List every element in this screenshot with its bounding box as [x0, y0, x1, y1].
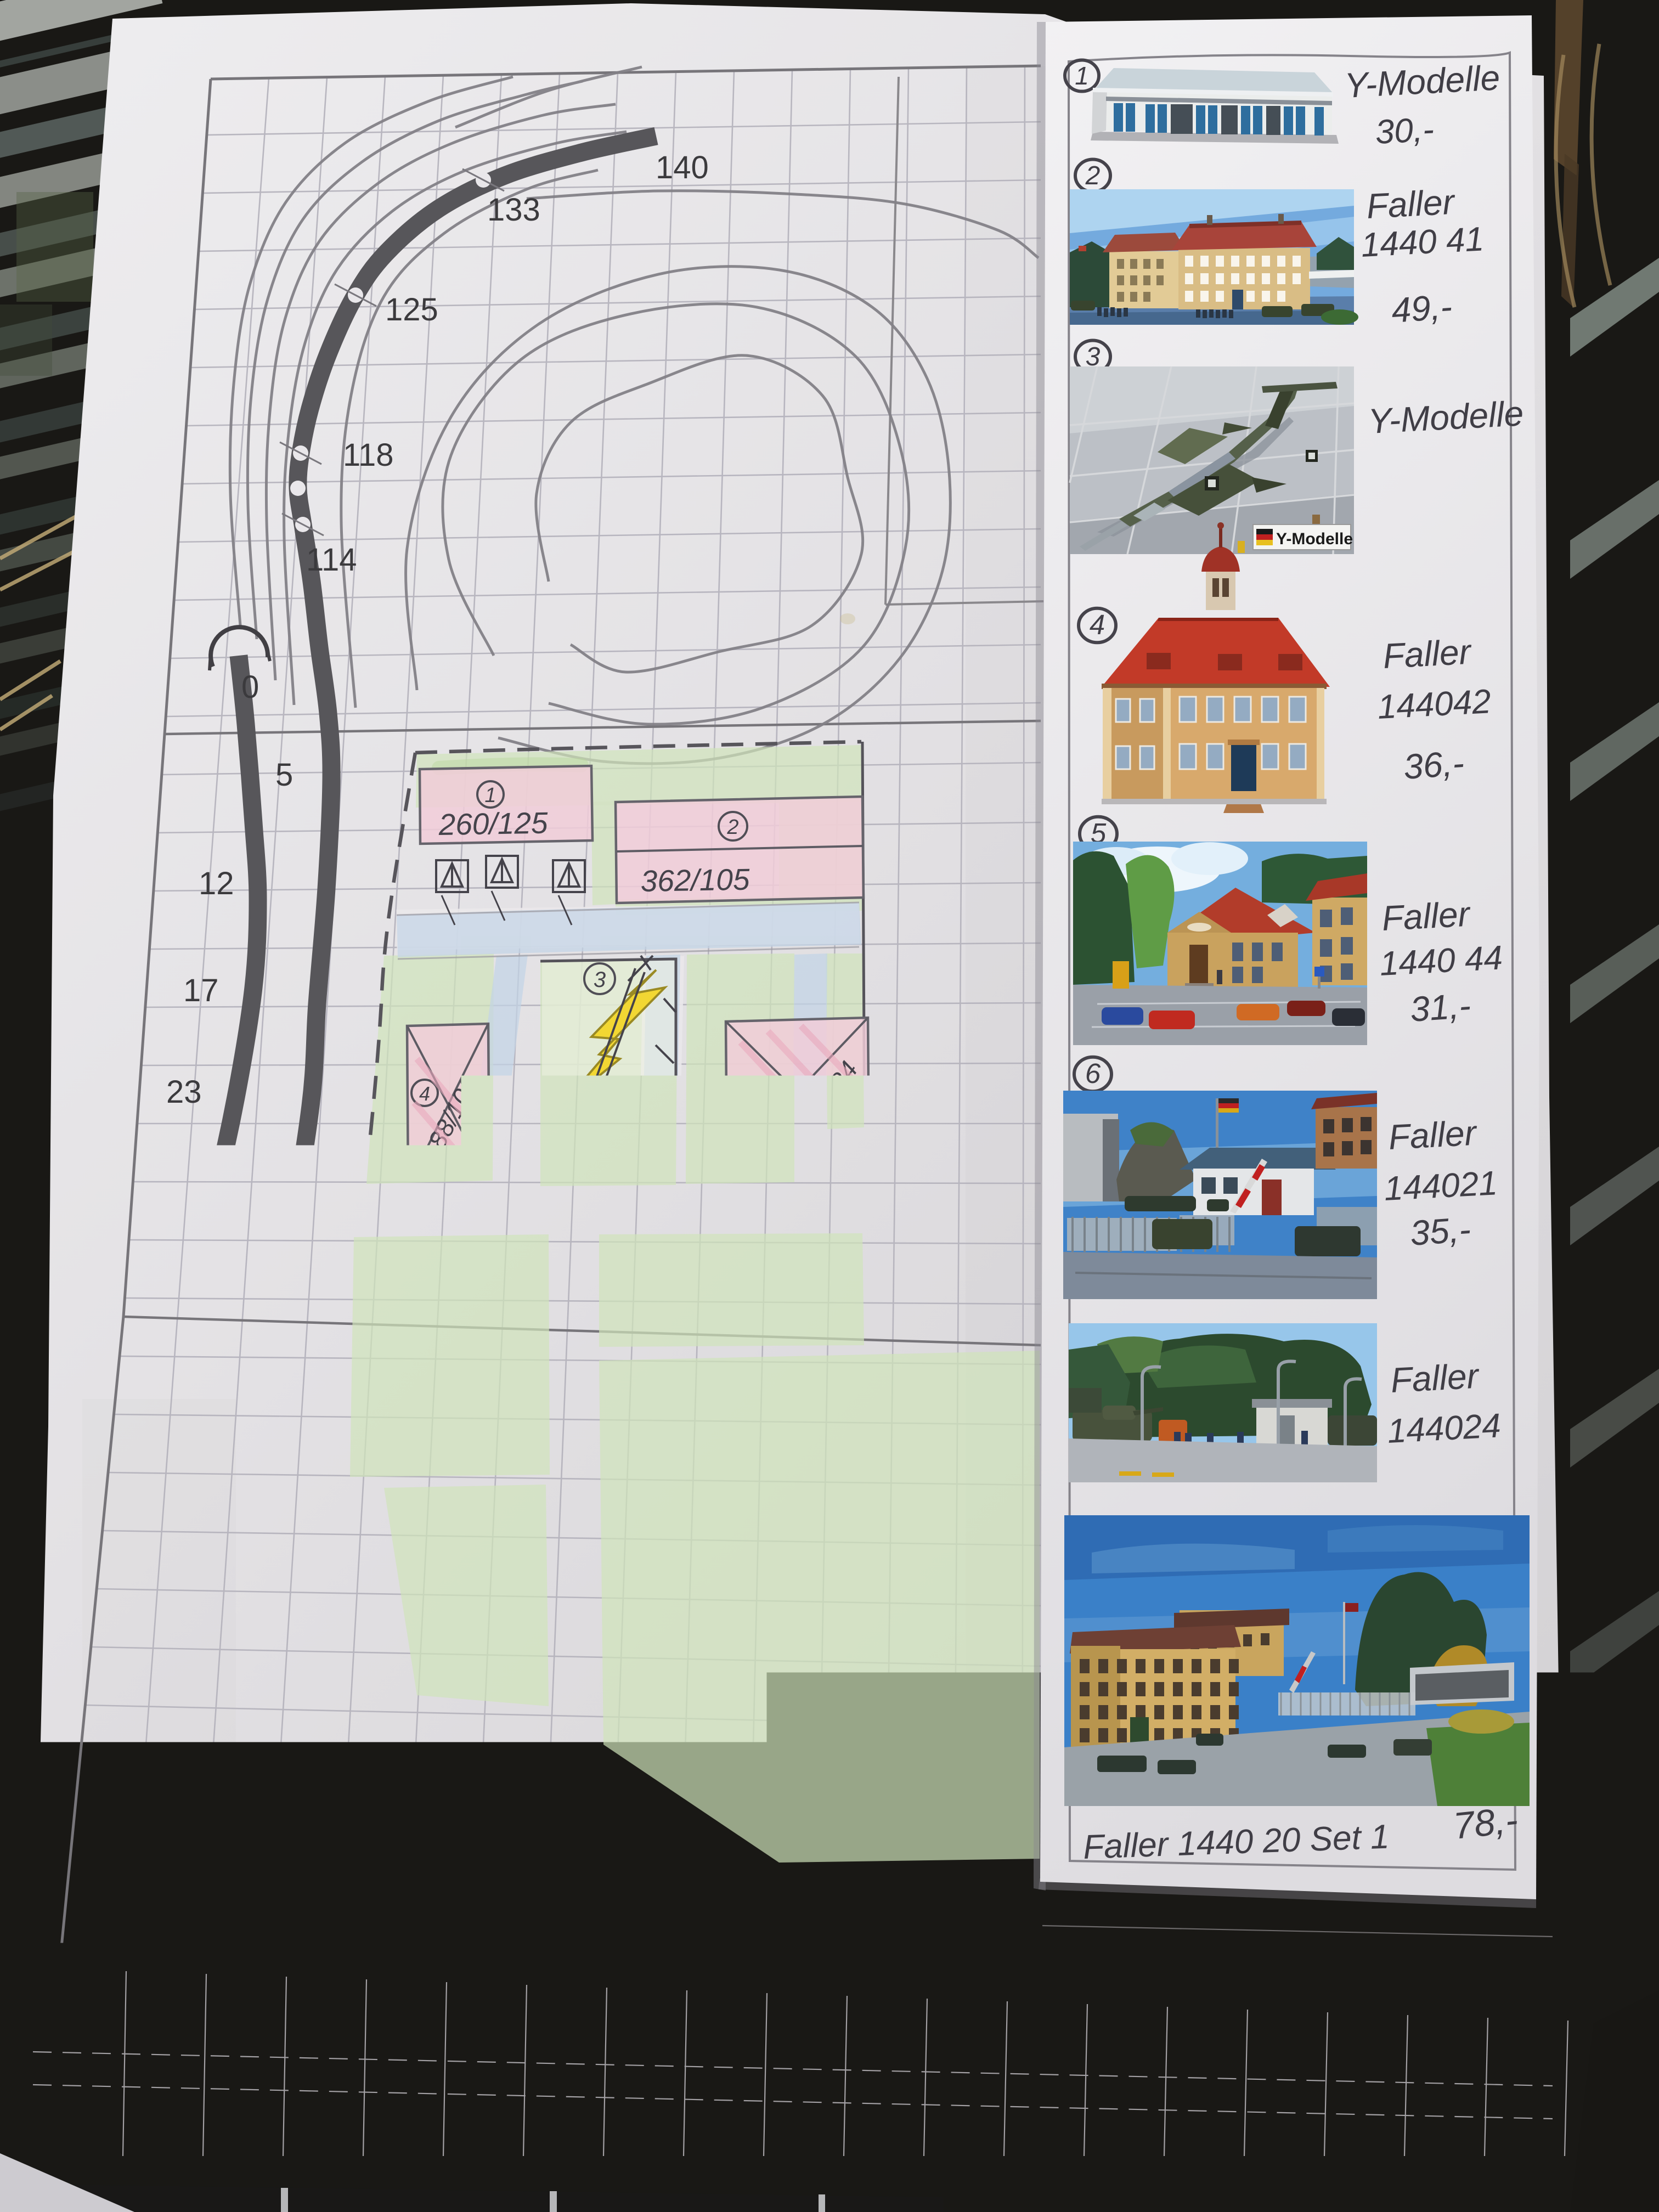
svg-text:1440 44: 1440 44 — [1379, 939, 1503, 983]
svg-text:144024: 144024 — [1386, 1407, 1502, 1451]
svg-text:60 60: 60 60 — [391, 1852, 470, 1888]
svg-text:6: 6 — [1085, 1058, 1101, 1089]
svg-text:Y-Modelle: Y-Modelle — [1276, 530, 1353, 548]
svg-text:5: 5 — [275, 757, 293, 793]
svg-text:2: 2 — [726, 816, 738, 839]
svg-text:36,-: 36,- — [1402, 743, 1465, 787]
svg-text:12: 12 — [199, 866, 234, 901]
svg-text:Faller: Faller — [1365, 182, 1457, 226]
svg-text:6: 6 — [505, 1340, 516, 1363]
svg-text:Faller: Faller — [1382, 632, 1473, 676]
svg-text:5: 5 — [755, 1082, 766, 1105]
svg-text:23: 23 — [166, 1074, 202, 1110]
svg-text:78,-: 78,- — [1452, 1799, 1520, 1847]
svg-text:114: 114 — [306, 542, 357, 578]
svg-text:Y-Modelle: Y-Modelle — [1367, 393, 1525, 441]
svg-text:Faller: Faller — [1381, 894, 1472, 938]
svg-text:69: 69 — [305, 1667, 341, 1702]
svg-text:1: 1 — [484, 784, 496, 807]
svg-text:125: 125 — [385, 292, 438, 328]
svg-text:14 40 23: 14 40 23 — [386, 1453, 490, 1487]
svg-text:47: 47 — [229, 1580, 265, 1616]
svg-text:1: 1 — [1075, 61, 1089, 90]
svg-text:3: 3 — [594, 968, 606, 992]
svg-text:30,-: 30,- — [1374, 110, 1435, 151]
svg-text:28: 28 — [151, 1192, 187, 1228]
svg-text:140: 140 — [656, 150, 709, 185]
svg-text:31,-: 31,- — [1409, 985, 1472, 1029]
svg-text:4: 4 — [1090, 609, 1105, 640]
svg-text:Y-Modelle: Y-Modelle — [1344, 58, 1501, 105]
svg-text:4: 4 — [419, 1082, 430, 1105]
svg-text:2: 2 — [1085, 161, 1101, 190]
svg-text:49,-: 49,- — [1390, 286, 1453, 330]
svg-text:118: 118 — [343, 437, 393, 473]
svg-text:260/125: 260/125 — [438, 806, 548, 842]
svg-text:33: 33 — [138, 1296, 174, 1332]
svg-text:17: 17 — [183, 973, 219, 1008]
svg-text:144042: 144042 — [1376, 682, 1492, 726]
svg-text:Faller: Faller — [1390, 1356, 1481, 1400]
svg-text:133: 133 — [487, 192, 540, 228]
svg-text:144021: 144021 — [1383, 1164, 1498, 1208]
svg-text:362/105: 362/105 — [640, 862, 750, 898]
svg-text:79: 79 — [261, 1413, 296, 1449]
svg-text:Faller: Faller — [1387, 1113, 1479, 1157]
svg-text:35,-: 35,- — [1409, 1209, 1472, 1253]
svg-text:1440 41: 1440 41 — [1360, 220, 1485, 264]
svg-text:0: 0 — [241, 669, 259, 705]
